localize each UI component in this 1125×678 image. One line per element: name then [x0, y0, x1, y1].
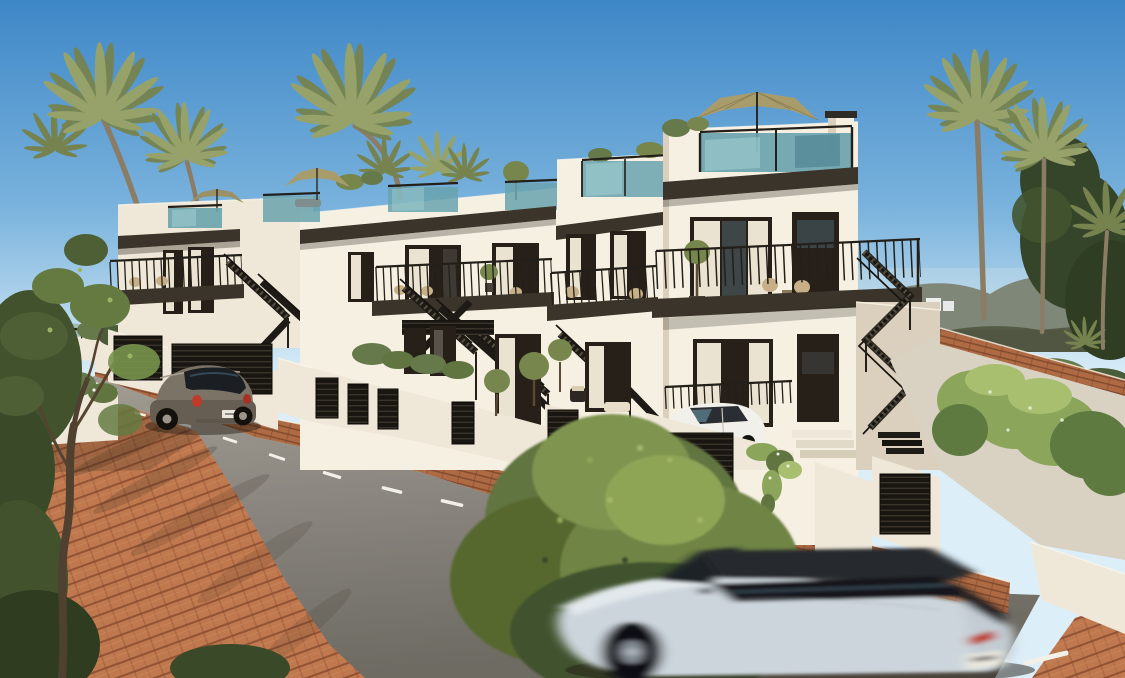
louvered-panel	[348, 384, 368, 424]
entry-steps	[792, 430, 856, 458]
louvered-panel	[880, 474, 930, 534]
scene-canvas	[0, 0, 1125, 678]
louvered-panel	[316, 378, 338, 418]
entry-door	[797, 334, 839, 422]
louvered-panel	[378, 389, 398, 429]
louvered-panel	[452, 402, 474, 444]
render-scene	[0, 0, 1125, 678]
